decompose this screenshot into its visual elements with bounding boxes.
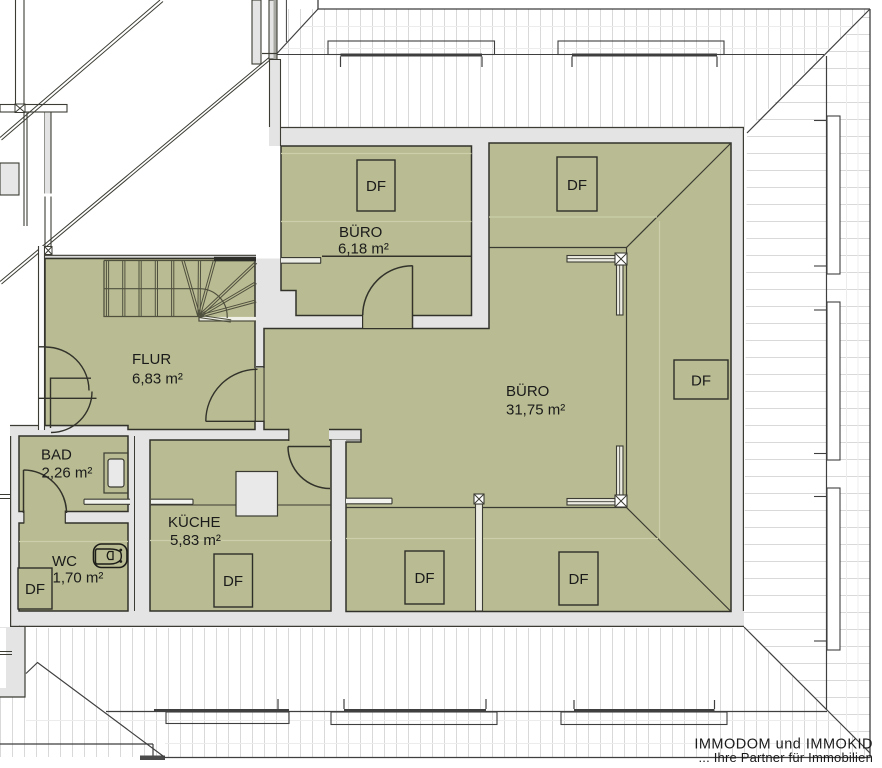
- svg-text:BÜRO: BÜRO: [506, 382, 549, 400]
- svg-text:6,83 m²: 6,83 m²: [132, 371, 183, 388]
- svg-text:DF: DF: [366, 178, 386, 195]
- svg-text:6,18 m²: 6,18 m²: [338, 241, 389, 258]
- svg-text:1,70 m²: 1,70 m²: [53, 570, 104, 587]
- svg-text:DF: DF: [567, 177, 587, 194]
- svg-text:... Ihre Partner für Immobilie: ... Ihre Partner für Immobilien: [698, 750, 873, 765]
- svg-text:KÜCHE: KÜCHE: [168, 513, 221, 531]
- svg-text:DF: DF: [223, 573, 243, 590]
- svg-text:31,75 m²: 31,75 m²: [506, 402, 565, 419]
- svg-text:FLUR: FLUR: [132, 351, 171, 368]
- svg-text:5,83 m²: 5,83 m²: [170, 532, 221, 549]
- svg-text:DF: DF: [415, 570, 435, 587]
- svg-text:BAD: BAD: [41, 447, 72, 464]
- svg-text:WC: WC: [52, 553, 77, 570]
- svg-text:2,26 m²: 2,26 m²: [42, 465, 93, 482]
- svg-text:DF: DF: [569, 571, 589, 588]
- svg-text:DF: DF: [691, 373, 711, 390]
- svg-text:BÜRO: BÜRO: [339, 223, 382, 241]
- svg-text:DF: DF: [25, 581, 45, 598]
